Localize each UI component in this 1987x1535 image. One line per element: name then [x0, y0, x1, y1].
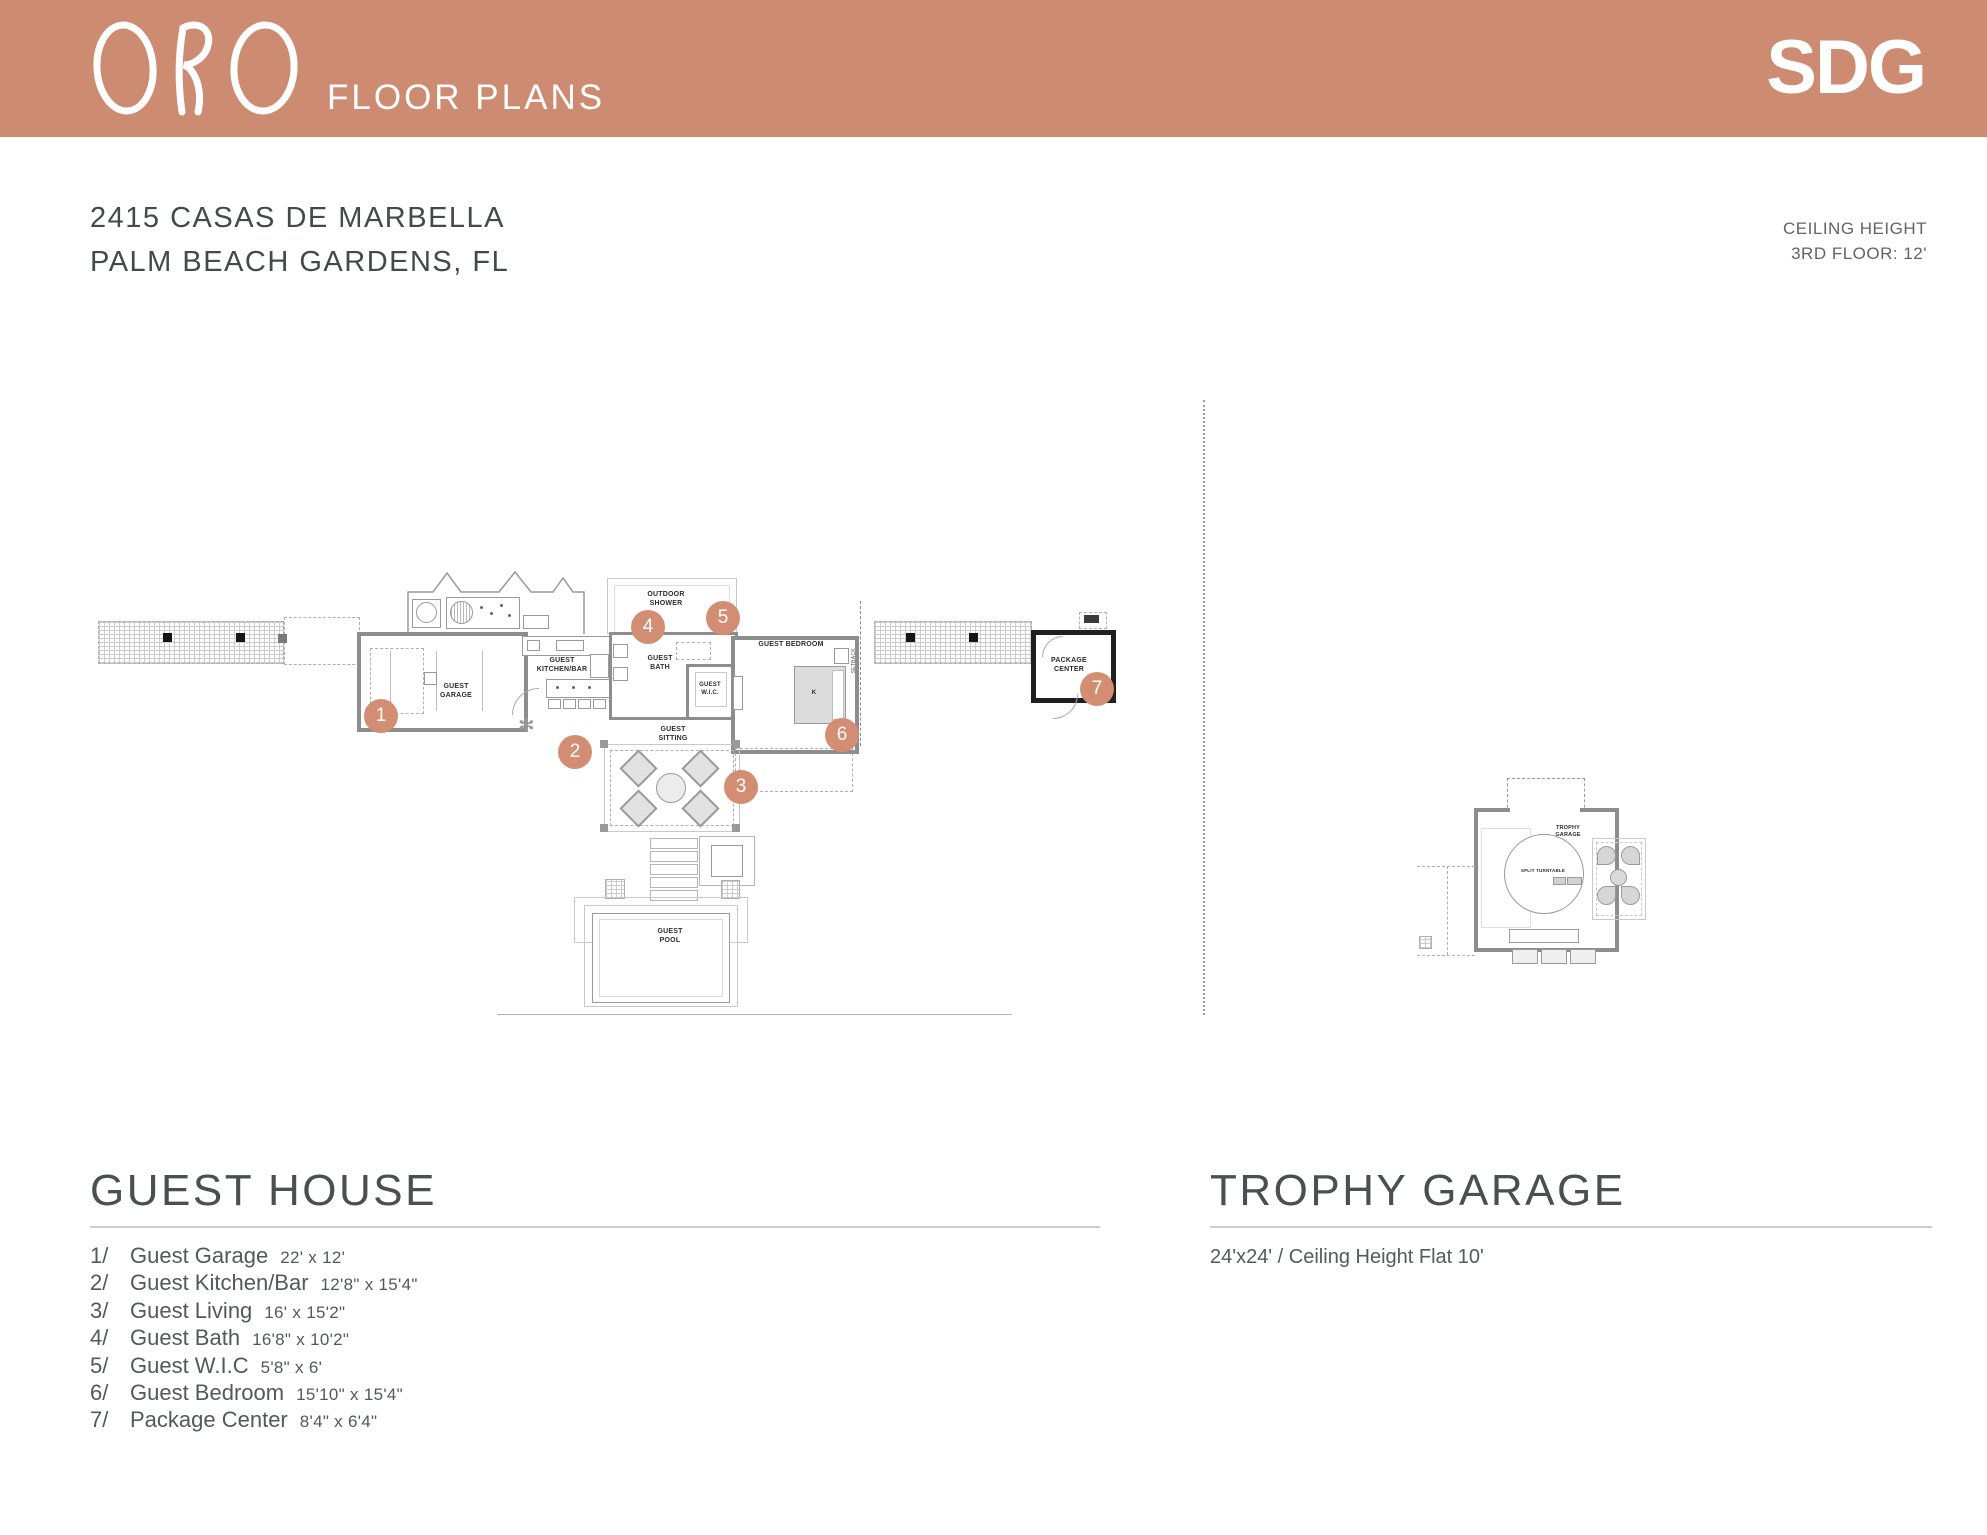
trophy-garage-rule — [1210, 1226, 1932, 1228]
legend-row: 3/ Guest Living 16' x 15'2" — [90, 1298, 418, 1325]
ceiling-height-note: CEILING HEIGHT 3RD FLOOR: 12' — [1783, 216, 1927, 266]
split-turntable-label: SPLIT TURNTABLE — [1512, 868, 1574, 874]
terrace-post — [732, 740, 740, 748]
driveway-west — [98, 621, 284, 664]
car-silhouette — [1567, 877, 1582, 885]
nightstand — [834, 648, 849, 664]
package-center-label: PACKAGE CENTER — [1041, 657, 1097, 675]
ground-line — [497, 1014, 1012, 1015]
fan-blade-icon — [416, 602, 437, 623]
terrace-post — [600, 740, 608, 748]
legend-num: 2/ — [90, 1270, 130, 1296]
guest-bath-label: GUEST BATH — [638, 655, 682, 673]
sdg-logo: SDG — [1766, 24, 1925, 111]
legend-dims: 8'4" x 6'4" — [300, 1412, 378, 1432]
legend-name: Guest Kitchen/Bar — [130, 1270, 309, 1296]
guest-bedroom-label: GUEST BEDROOM — [748, 641, 834, 650]
terrace-step — [650, 851, 698, 862]
bed-pillows — [832, 670, 844, 720]
guest-house-legend: 1/ Guest Garage 22' x 12' 2/ Guest Kitch… — [90, 1243, 418, 1435]
guest-garage-label: GUEST GARAGE — [433, 683, 479, 701]
paver — [1512, 949, 1538, 964]
walkway-post — [969, 633, 978, 642]
access-path-line — [1417, 955, 1475, 956]
plan-badge-2: 2 — [558, 735, 592, 769]
spa-inner — [711, 845, 743, 877]
garage-lift-line — [482, 651, 483, 711]
access-path-line-v — [1447, 866, 1448, 955]
legend-dims: 12'8" x 15'4" — [321, 1275, 418, 1295]
plant-icon: ✻ — [518, 716, 535, 736]
plan-badge-6: 6 — [825, 718, 859, 752]
guest-house-rule — [90, 1226, 1100, 1228]
guest-house-title: GUEST HOUSE — [90, 1166, 437, 1216]
access-post — [1419, 936, 1432, 949]
legend-row: 7/ Package Center 8'4" x 6'4" — [90, 1407, 418, 1434]
legend-num: 4/ — [90, 1325, 130, 1351]
legend-name: Guest Living — [130, 1298, 252, 1324]
car-silhouette — [1553, 877, 1566, 885]
bedroom-bench — [733, 676, 743, 710]
oro-logo-icon — [88, 12, 313, 124]
header-band: FLOOR PLANS SDG — [0, 0, 1987, 137]
address-line1: 2415 CASAS DE MARBELLA — [90, 196, 509, 240]
setback-label: SETBACK — [851, 648, 857, 673]
legend-name: Guest Bedroom — [130, 1380, 284, 1406]
plan-badge-7: 7 — [1080, 672, 1114, 706]
guest-kitchen-label: GUEST KITCHEN/BAR — [536, 657, 588, 675]
access-path-line — [1417, 866, 1475, 867]
plan-badge-1: 1 — [364, 699, 398, 733]
legend-row: 1/ Guest Garage 22' x 12' — [90, 1243, 418, 1270]
property-line — [860, 601, 861, 746]
guest-sitting-label: GUEST SITTING — [655, 726, 691, 744]
paver — [1541, 949, 1567, 964]
island-tap — [556, 686, 559, 689]
legend-name: Guest Garage — [130, 1243, 268, 1269]
plan-badge-3: 3 — [724, 770, 758, 804]
terrace-step — [650, 864, 698, 875]
bar-stool — [578, 699, 591, 709]
terrace-step — [650, 838, 698, 849]
bath-vanity-sink — [613, 644, 628, 658]
kitchen-sink — [556, 640, 584, 651]
plan-divider-line — [1203, 400, 1205, 1015]
legend-row: 4/ Guest Bath 16'8" x 10'2" — [90, 1325, 418, 1352]
pipe-dot — [508, 614, 511, 617]
walkway-east — [874, 621, 1032, 664]
bath-vanity-sink — [613, 667, 628, 681]
vent-unit — [523, 615, 549, 629]
walkway-post — [906, 633, 915, 642]
legend-row: 5/ Guest W.I.C 5'8" x 6' — [90, 1353, 418, 1380]
property-address: 2415 CASAS DE MARBELLA PALM BEACH GARDEN… — [90, 196, 509, 284]
ceiling-note-line1: CEILING HEIGHT — [1783, 216, 1927, 241]
legend-num: 1/ — [90, 1243, 130, 1269]
legend-name: Guest Bath — [130, 1325, 240, 1351]
address-line2: PALM BEACH GARDENS, FL — [90, 240, 509, 284]
patio-chair — [1621, 886, 1640, 905]
patio-chair — [1597, 846, 1616, 865]
legend-num: 6/ — [90, 1380, 130, 1406]
patio-chair — [1621, 846, 1640, 865]
trophy-workbench — [1509, 929, 1579, 943]
bar-stool — [593, 699, 606, 709]
trophy-door-opening — [1510, 806, 1580, 814]
sitting-table — [656, 773, 686, 803]
legend-name: Package Center — [130, 1407, 288, 1433]
plan-badge-5: 5 — [706, 601, 740, 635]
legend-row: 6/ Guest Bedroom 15'10" x 15'4" — [90, 1380, 418, 1407]
terrace-post — [600, 824, 608, 832]
guest-pool-label: GUEST POOL — [650, 928, 690, 946]
mail-drop — [1084, 615, 1099, 623]
bed-size-label: K — [808, 690, 820, 698]
bar-stool — [563, 699, 576, 709]
island-tap — [572, 686, 575, 689]
pipe-dot — [480, 606, 483, 609]
legend-dims: 16'8" x 10'2" — [252, 1330, 349, 1350]
driveway-post — [236, 633, 245, 642]
driveway-post — [278, 634, 287, 643]
terrace-step — [650, 877, 698, 888]
trophy-garage-title: TROPHY GARAGE — [1210, 1166, 1626, 1216]
driveway-west-extension — [284, 617, 360, 665]
pipe-dot — [500, 604, 503, 607]
outdoor-shower-label: OUTDOOR SHOWER — [645, 591, 687, 609]
page-title: FLOOR PLANS — [327, 78, 605, 118]
car-turntable — [1504, 834, 1584, 914]
legend-dims: 22' x 12' — [280, 1248, 345, 1268]
legend-dims: 5'8" x 6' — [261, 1358, 323, 1378]
package-door-arc — [1053, 694, 1078, 719]
pipe-dot — [490, 612, 493, 615]
legend-num: 5/ — [90, 1353, 130, 1379]
island-tap — [588, 686, 591, 689]
paver — [1570, 949, 1596, 964]
floor-plan-page: FLOOR PLANS SDG 2415 CASAS DE MARBELLA P… — [0, 0, 1987, 1535]
patio-table — [1610, 869, 1627, 886]
ceiling-note-line2: 3RD FLOOR: 12' — [1783, 241, 1927, 266]
driveway-post — [163, 633, 172, 642]
legend-name: Guest W.I.C — [130, 1353, 249, 1379]
legend-dims: 15'10" x 15'4" — [296, 1385, 403, 1405]
kitchen-counter-east — [590, 654, 609, 678]
trophy-garage-subtitle: 24'x24' / Ceiling Height Flat 10' — [1210, 1246, 1484, 1269]
terrace-post — [732, 824, 740, 832]
legend-row: 2/ Guest Kitchen/Bar 12'8" x 15'4" — [90, 1270, 418, 1297]
guest-wic-label: GUEST W.I.C. — [692, 682, 728, 697]
kitchen-appliance — [527, 640, 540, 651]
planter — [605, 879, 625, 899]
legend-num: 7/ — [90, 1407, 130, 1433]
equipment-motor-icon — [450, 601, 473, 624]
patio-chair — [1597, 886, 1616, 905]
plan-badge-4: 4 — [631, 610, 665, 644]
legend-dims: 16' x 15'2" — [264, 1303, 345, 1323]
legend-num: 3/ — [90, 1298, 130, 1324]
bar-stool — [548, 699, 561, 709]
